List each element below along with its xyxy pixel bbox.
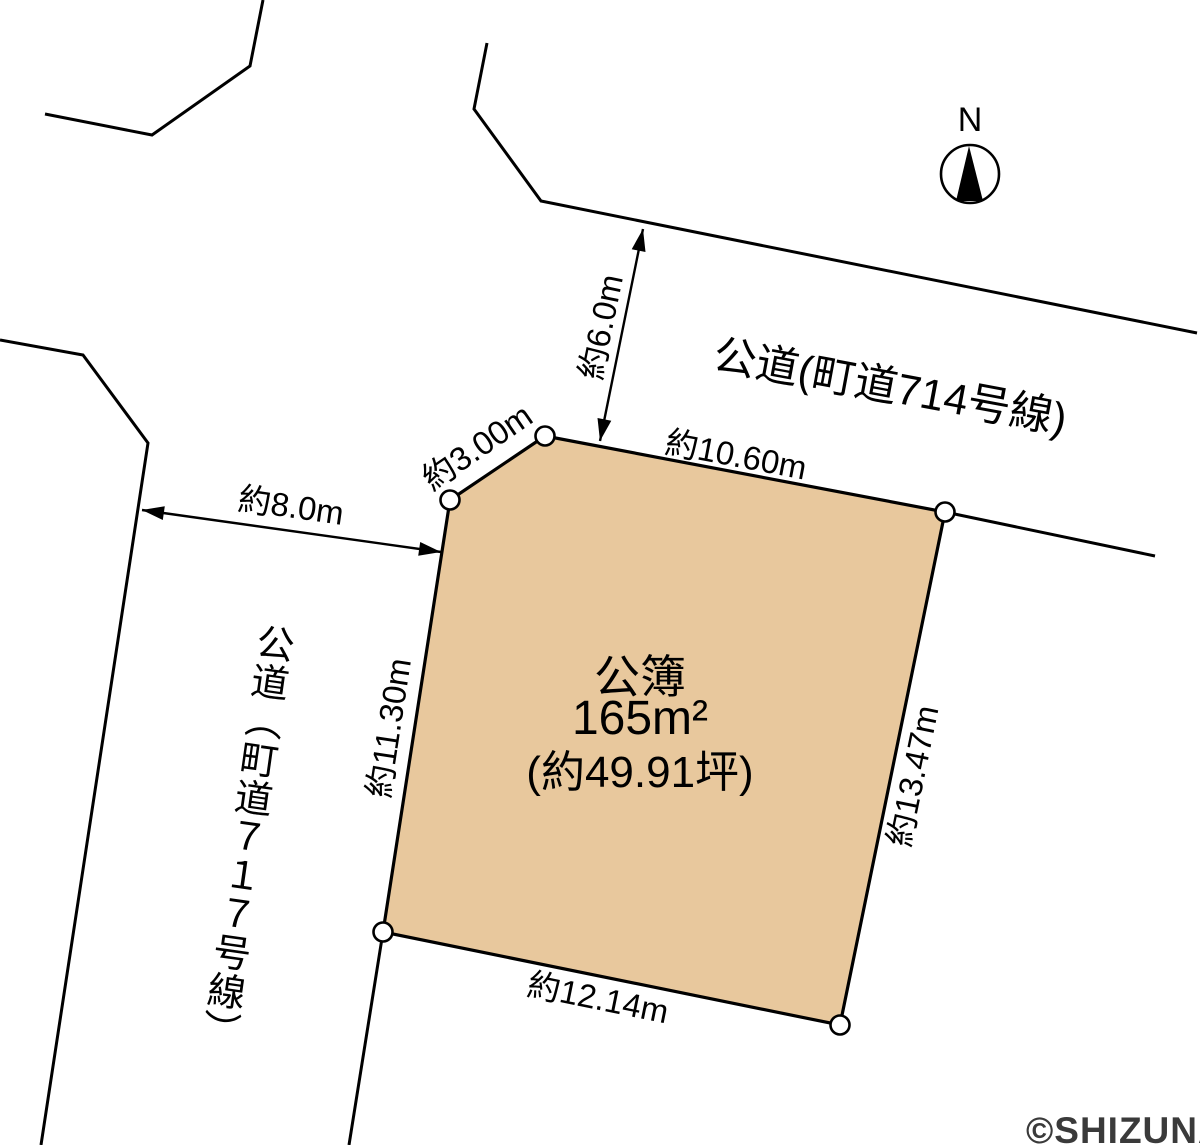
vertex-marker-southwest [374,923,393,942]
arrowhead-right-icon [418,542,441,556]
compass-north-label: N [958,103,983,137]
arrowhead-left-icon [142,506,165,520]
road-717-west-edge [0,340,148,1145]
road-714-north-edge [474,43,1197,333]
plan-canvas [0,0,1200,1145]
compass-icon [941,145,999,203]
road-714-south-edge [945,512,1155,556]
compass-needle-icon [956,146,983,201]
vertex-marker-southeast [831,1016,850,1035]
road-boundary-northwest-corner [45,0,263,135]
road-717-east-edge [349,932,383,1145]
vertex-marker-west [441,491,460,510]
parcel-area-m2: 165m² [572,695,708,743]
vertex-marker-north [536,427,555,446]
watermark-text: ©SHIZUNAVI [1026,1112,1200,1145]
parcel-area-tsubo: (約49.91坪) [526,751,753,795]
vertex-marker-northeast [936,503,955,522]
site-plan-diagram: N 公道(町道714号線) 公道（町道７１７号線） 公簿 165m² (約49.… [0,0,1200,1145]
